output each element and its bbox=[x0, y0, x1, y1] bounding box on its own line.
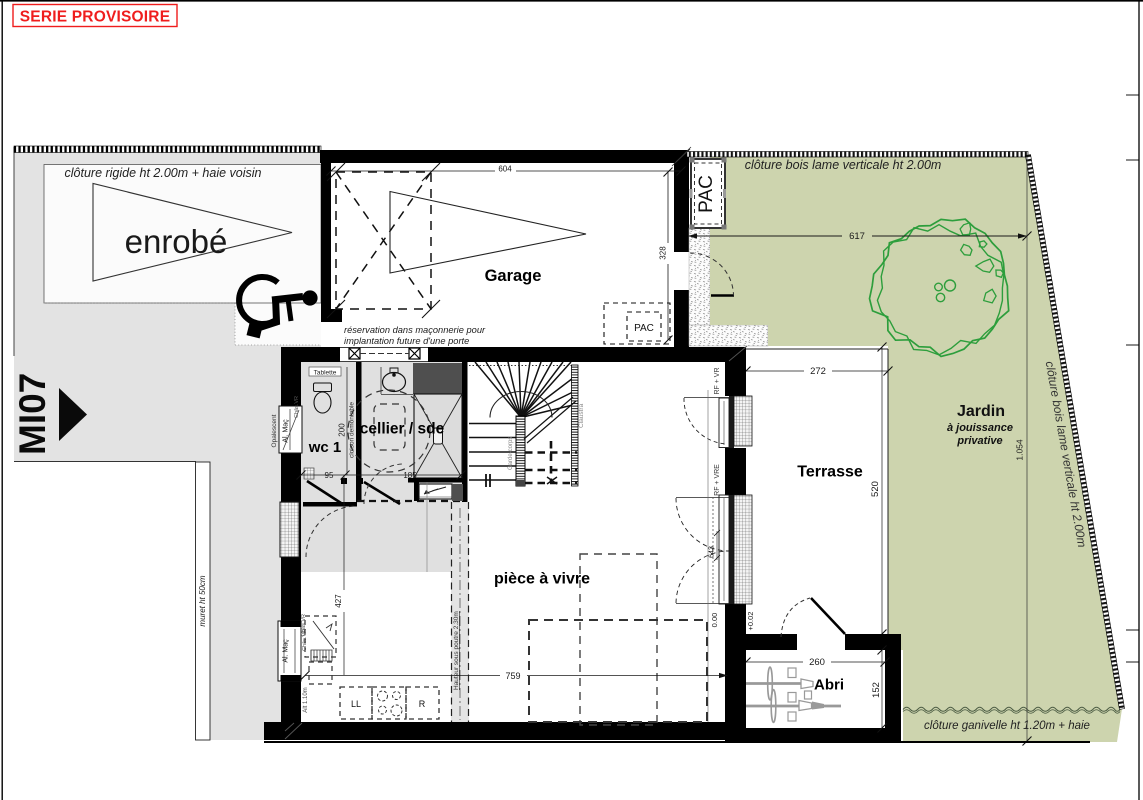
svg-text:Jardin: Jardin bbox=[957, 403, 1005, 420]
svg-text:clôture rigide ht 2.00m + haie: clôture rigide ht 2.00m + haie voisin bbox=[65, 166, 262, 180]
svg-text:Tablette: Tablette bbox=[314, 370, 337, 377]
svg-text:185: 185 bbox=[403, 471, 417, 480]
svg-text:réservation dans maçonnerie po: réservation dans maçonnerie pour bbox=[344, 325, 486, 335]
svg-text:Châs.VR: Châs.VR bbox=[294, 396, 300, 418]
svg-text:à jouissance: à jouissance bbox=[947, 422, 1013, 434]
svg-text:implantation future d'une port: implantation future d'une porte bbox=[344, 336, 469, 346]
svg-text:RF + VRE: RF + VRE bbox=[714, 464, 721, 496]
svg-text:617: 617 bbox=[849, 231, 865, 242]
svg-text:cellier / sde: cellier / sde bbox=[360, 421, 445, 438]
svg-text:260: 260 bbox=[809, 657, 825, 668]
svg-text:privative: privative bbox=[956, 435, 1002, 447]
svg-text:Hauteur sous poutre 2.30m: Hauteur sous poutre 2.30m bbox=[453, 611, 460, 690]
svg-text:0.00: 0.00 bbox=[710, 613, 719, 628]
svg-text:Châs.VR: Châs.VR bbox=[302, 629, 308, 651]
svg-text:1.054: 1.054 bbox=[1015, 439, 1025, 461]
svg-text:Claustra: Claustra bbox=[578, 403, 585, 428]
svg-text:272: 272 bbox=[810, 366, 826, 377]
svg-text:RF + VR: RF + VR bbox=[714, 367, 721, 394]
svg-text:muret ht 50cm: muret ht 50cm bbox=[198, 575, 207, 626]
svg-text:enrobé: enrobé bbox=[125, 223, 228, 260]
svg-text:Opalescent: Opalescent bbox=[271, 414, 278, 447]
svg-text:Abri: Abri bbox=[814, 677, 844, 694]
svg-text:MI07: MI07 bbox=[12, 373, 53, 455]
svg-text:328: 328 bbox=[659, 246, 668, 260]
svg-text:Garage: Garage bbox=[485, 267, 542, 285]
svg-text:pièce à vivre: pièce à vivre bbox=[494, 571, 590, 588]
svg-text:643: 643 bbox=[709, 546, 716, 558]
svg-text:95: 95 bbox=[325, 471, 334, 480]
svg-text:+0.02: +0.02 bbox=[746, 612, 755, 631]
svg-text:604: 604 bbox=[498, 165, 512, 174]
svg-text:Al. Maç: Al. Maç bbox=[283, 419, 290, 443]
svg-text:152: 152 bbox=[871, 682, 882, 698]
svg-text:Terrasse: Terrasse bbox=[797, 464, 863, 481]
svg-text:427: 427 bbox=[334, 594, 343, 608]
svg-text:PAC: PAC bbox=[696, 175, 717, 213]
svg-text:clôture ganivelle ht 1.20m + h: clôture ganivelle ht 1.20m + haie bbox=[924, 720, 1090, 732]
svg-text:Alt 1.10m: Alt 1.10m bbox=[303, 687, 309, 712]
svg-text:clôture bois lame verticale ht: clôture bois lame verticale ht 2.00m bbox=[745, 158, 942, 172]
svg-text:LL: LL bbox=[351, 699, 361, 709]
svg-text:wc 1: wc 1 bbox=[308, 439, 342, 456]
svg-text:SERIE PROVISOIRE: SERIE PROVISOIRE bbox=[20, 9, 171, 26]
svg-text:PAC: PAC bbox=[634, 323, 654, 334]
svg-text:759: 759 bbox=[505, 671, 520, 681]
svg-text:Al. Maç: Al. Maç bbox=[283, 639, 290, 663]
svg-text:Garde-corps: Garde-corps bbox=[508, 437, 514, 470]
svg-text:520: 520 bbox=[870, 481, 881, 497]
svg-text:200: 200 bbox=[338, 423, 347, 437]
svg-text:R: R bbox=[419, 699, 426, 709]
